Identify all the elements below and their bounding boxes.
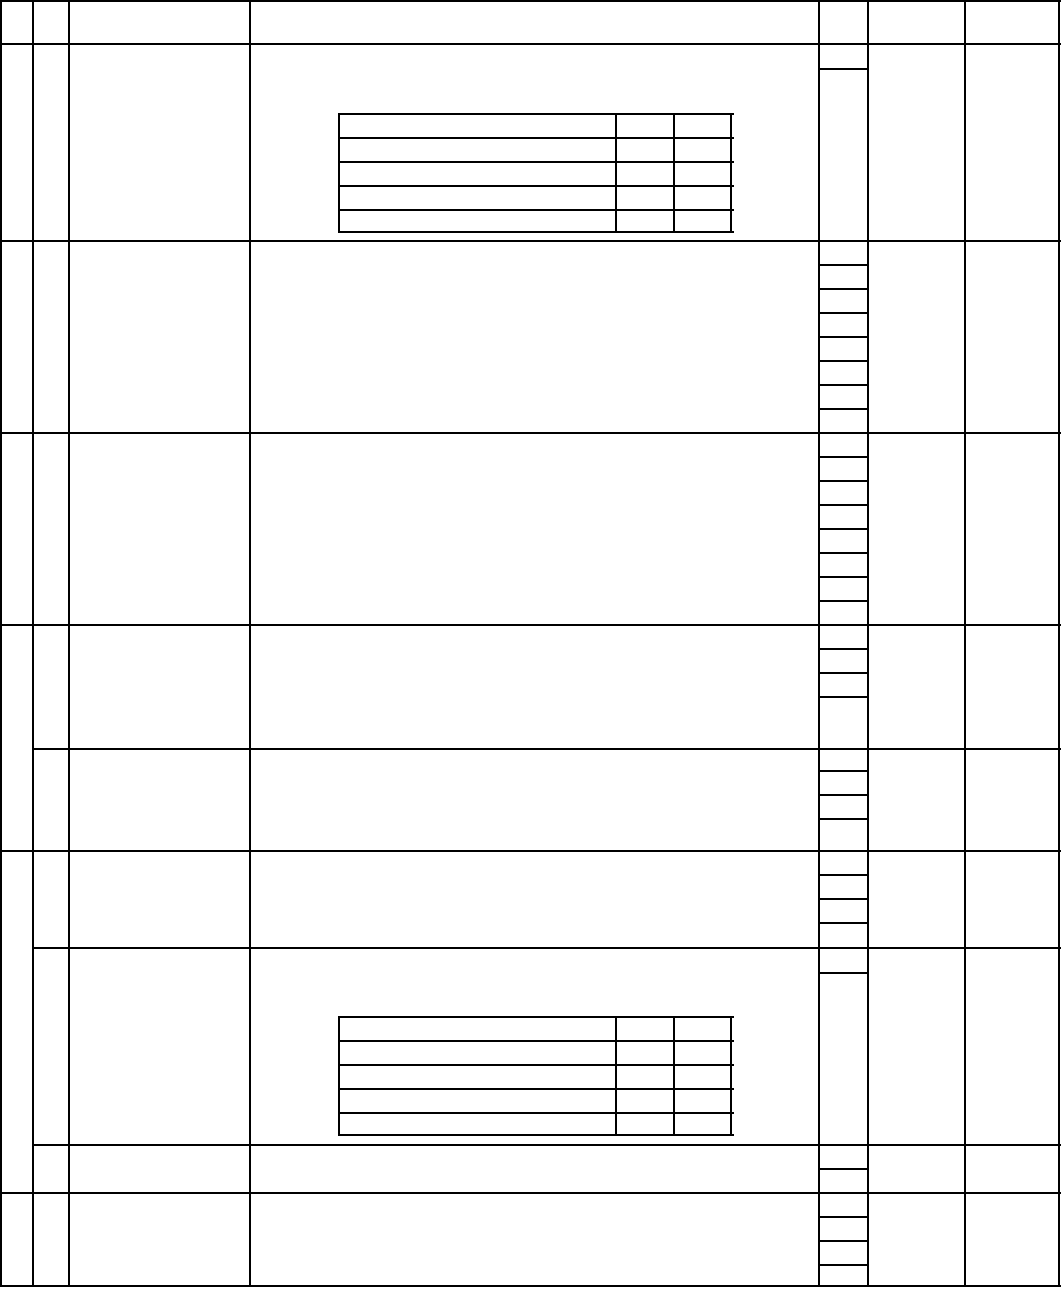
results-column-tick-hline bbox=[818, 696, 869, 698]
main-table-border-right-vline bbox=[1058, 0, 1060, 1287]
results-column-tick-hline bbox=[818, 312, 869, 314]
main-table-row-hline bbox=[0, 43, 1061, 45]
inner-table-1-hline bbox=[338, 113, 734, 115]
inner-table-2-vline bbox=[615, 1016, 617, 1136]
main-table-border-left-vline bbox=[0, 0, 2, 1287]
inner-table-2-hline bbox=[338, 1134, 734, 1136]
inner-table-2-hline bbox=[338, 1112, 734, 1114]
inner-table-1-vline bbox=[615, 113, 617, 233]
results-column-tick-hline bbox=[818, 528, 869, 530]
results-column bbox=[818, 0, 867, 1287]
results-column-tick-hline bbox=[818, 336, 869, 338]
results-column-tick-hline bbox=[818, 504, 869, 506]
results-column-tick-hline bbox=[818, 672, 869, 674]
results-column-tick-hline bbox=[818, 264, 869, 266]
main-table-col-4-vline bbox=[818, 0, 820, 1287]
main-table-row-partial-hline bbox=[32, 1144, 1061, 1146]
inner-table-1-hline bbox=[338, 137, 734, 139]
main-table-row-hline bbox=[0, 1192, 1061, 1194]
results-column-tick-hline bbox=[818, 456, 869, 458]
blank-form-page bbox=[0, 0, 1061, 1289]
main-table-col-3-vline bbox=[249, 0, 251, 1287]
inner-table-1-hline bbox=[338, 185, 734, 187]
results-column-tick-hline bbox=[818, 600, 869, 602]
results-column-tick-hline bbox=[818, 1216, 869, 1218]
main-table-border-bottom-hline bbox=[0, 1285, 1061, 1287]
inner-table-2-hline bbox=[338, 1064, 734, 1066]
main-table-row-hline bbox=[0, 432, 1061, 434]
results-column-tick-hline bbox=[818, 1240, 869, 1242]
results-column-tick-hline bbox=[818, 972, 869, 974]
main-table-col-5-vline bbox=[867, 0, 869, 1287]
main-table-row-partial-hline bbox=[32, 748, 1061, 750]
main-table-row-hline bbox=[0, 850, 1061, 852]
results-column-tick-hline bbox=[818, 68, 869, 70]
main-table-row-hline bbox=[0, 624, 1061, 626]
inner-table-1-hline bbox=[338, 231, 734, 233]
results-column-tick-hline bbox=[818, 818, 869, 820]
main-table-col-6-vline bbox=[964, 0, 966, 1287]
results-column-tick-hline bbox=[818, 408, 869, 410]
inner-table-2-vline bbox=[673, 1016, 675, 1136]
results-column-tick-hline bbox=[818, 898, 869, 900]
results-column-tick-hline bbox=[818, 922, 869, 924]
inner-table-1-hline bbox=[338, 161, 734, 163]
main-table-row-partial-hline bbox=[32, 947, 1061, 949]
inner-table-2-vline bbox=[730, 1016, 732, 1136]
results-column-tick-hline bbox=[818, 794, 869, 796]
results-column-tick-hline bbox=[818, 480, 869, 482]
inner-table-1-hline bbox=[338, 209, 734, 211]
results-column-tick-hline bbox=[818, 384, 869, 386]
inner-table-2-vline bbox=[338, 1016, 340, 1136]
main-table-col-1-vline bbox=[32, 0, 34, 1287]
inner-table-2-hline bbox=[338, 1016, 734, 1018]
results-column-tick-hline bbox=[818, 288, 869, 290]
results-column-tick-hline bbox=[818, 576, 869, 578]
results-column-tick-hline bbox=[818, 1264, 869, 1266]
results-column-tick-hline bbox=[818, 770, 869, 772]
results-column-tick-hline bbox=[818, 874, 869, 876]
inner-table-2-hline bbox=[338, 1040, 734, 1042]
inner-table-1-vline bbox=[730, 113, 732, 233]
main-table-border-top-hline bbox=[0, 0, 1061, 2]
inner-table-1-vline bbox=[338, 113, 340, 233]
results-column-tick-hline bbox=[818, 552, 869, 554]
inner-table-2-hline bbox=[338, 1088, 734, 1090]
main-table-row-hline bbox=[0, 240, 1061, 242]
main-table-col-2-vline bbox=[68, 0, 70, 1287]
results-column-tick-hline bbox=[818, 648, 869, 650]
inner-table-1-vline bbox=[673, 113, 675, 233]
results-column-tick-hline bbox=[818, 360, 869, 362]
results-column-tick-hline bbox=[818, 1168, 869, 1170]
